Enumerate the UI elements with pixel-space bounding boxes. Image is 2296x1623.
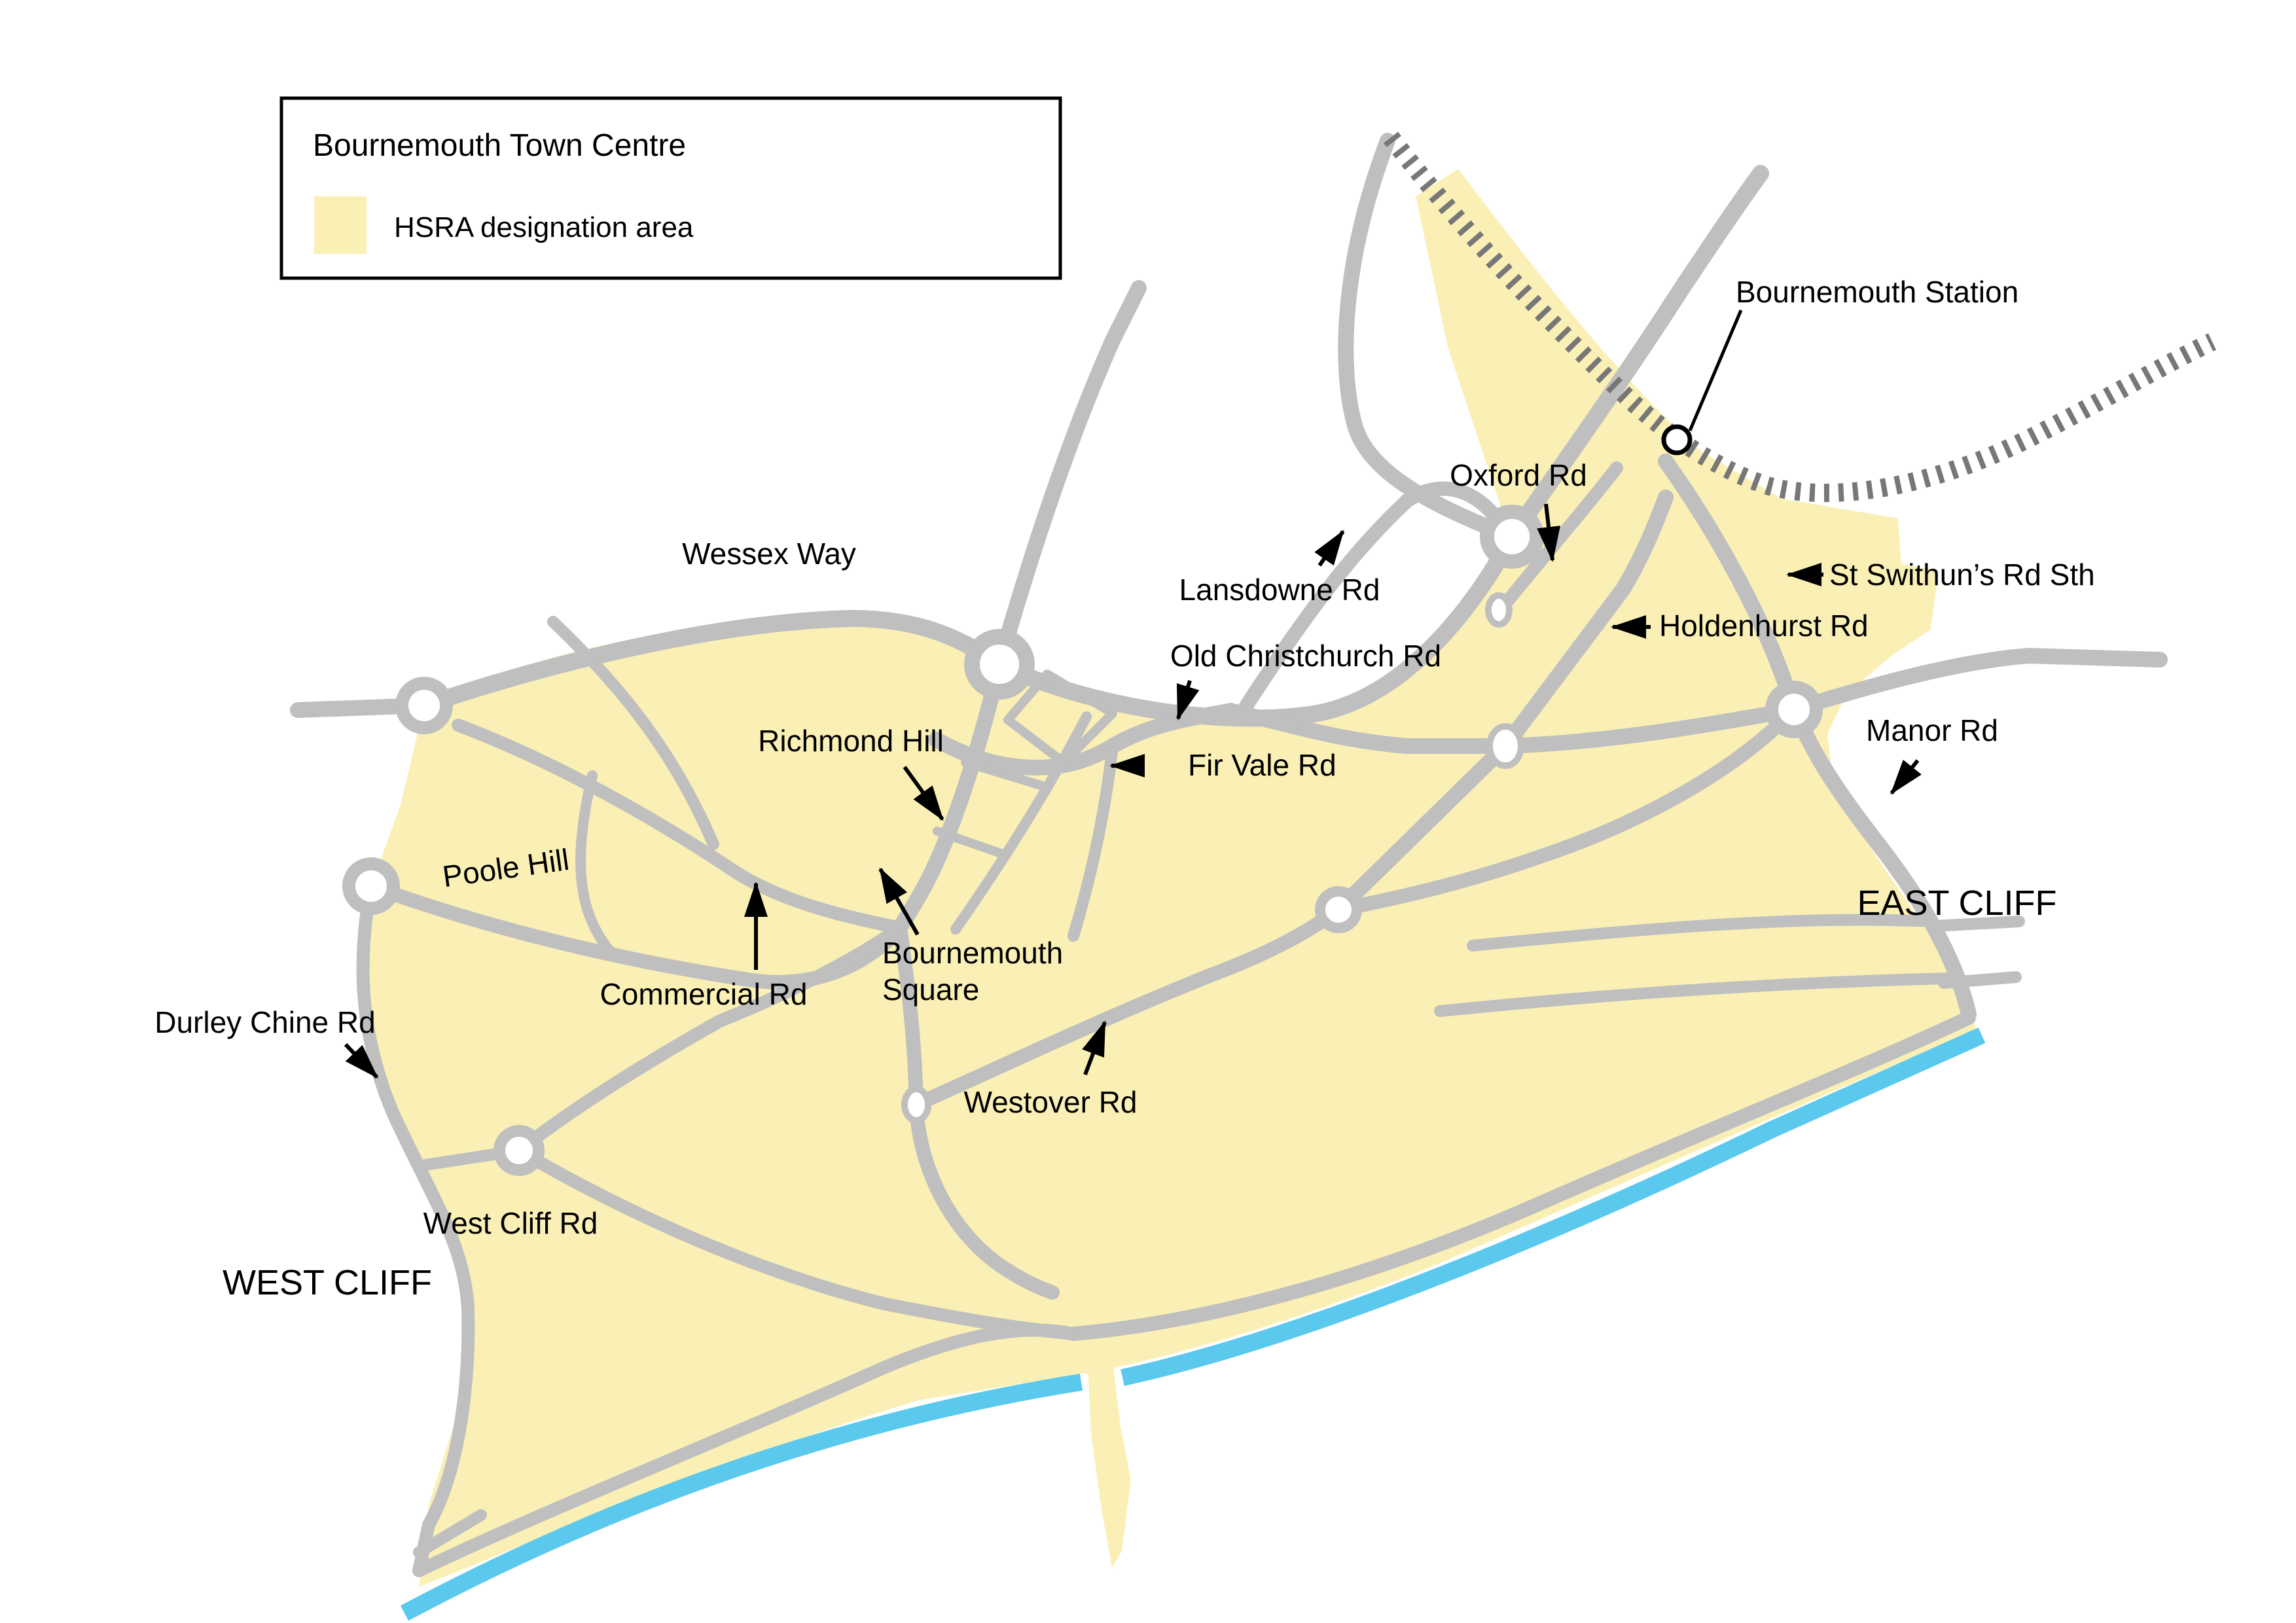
junction-east: [1772, 687, 1816, 732]
lansdowne-rd-arrow: [1319, 531, 1343, 565]
legend-title: Bournemouth Town Centre: [313, 128, 686, 163]
label-bournemouth-square-line2: Square: [882, 972, 979, 1007]
label-west-cliff-rd: West Cliff Rd: [423, 1206, 598, 1240]
junction-west: [402, 683, 446, 728]
junction-oxford-oval: [1488, 596, 1509, 624]
label-east-cliff: EAST CLIFF: [1857, 883, 2056, 923]
junction-wessex-roundabout: [972, 637, 1027, 692]
legend-hsra-swatch: [314, 196, 367, 254]
label-lansdowne-rd: Lansdowne Rd: [1179, 573, 1380, 607]
manor-rd-arrow: [1892, 760, 1918, 793]
label-holdenhurst-rd: Holdenhurst Rd: [1659, 609, 1869, 643]
legend: Bournemouth Town Centre HSRA designation…: [281, 98, 1060, 278]
station-circle-icon: [1664, 427, 1690, 453]
pier: [1088, 1360, 1131, 1568]
label-bournemouth-station: Bournemouth Station: [1736, 275, 2018, 309]
station-leader-line: [1690, 310, 1741, 431]
junction-poole-hill: [349, 864, 393, 908]
label-west-cliff: WEST CLIFF: [223, 1263, 432, 1302]
junction-west-cliff: [499, 1131, 539, 1170]
label-manor-rd: Manor Rd: [1866, 713, 1998, 747]
label-commercial-rd: Commercial Rd: [600, 977, 808, 1011]
label-oxford-rd: Oxford Rd: [1450, 458, 1587, 492]
map-canvas: Bournemouth Town Centre HSRA designation…: [0, 0, 2296, 1623]
label-st-swithuns-rd-sth: St Swithun’s Rd Sth: [1829, 558, 2095, 592]
road-north-from-roundabout: [999, 288, 1139, 664]
junction-lansdowne: [1490, 726, 1521, 766]
label-bournemouth-square-line1: Bournemouth: [882, 936, 1063, 970]
label-fir-vale-rd: Fir Vale Rd: [1188, 748, 1336, 782]
label-richmond-hill: Richmond Hill: [758, 724, 944, 758]
junction-westover-oval: [905, 1089, 928, 1120]
label-westover-rd: Westover Rd: [963, 1085, 1137, 1119]
label-old-christchurch-rd: Old Christchurch Rd: [1170, 639, 1441, 673]
station-marker: [1664, 310, 1741, 453]
junction-horseshoe: [1320, 891, 1357, 928]
label-durley-chine-rd: Durley Chine Rd: [154, 1005, 375, 1039]
legend-box: [281, 98, 1060, 278]
bournemouth-town-centre-map: Bournemouth Town Centre HSRA designation…: [0, 0, 2296, 1623]
junction-station-roundabout: [1487, 512, 1537, 562]
legend-hsra-label: HSRA designation area: [394, 211, 694, 243]
road-east-stub-2: [1944, 977, 2016, 983]
label-wessex-way: Wessex Way: [682, 537, 856, 571]
